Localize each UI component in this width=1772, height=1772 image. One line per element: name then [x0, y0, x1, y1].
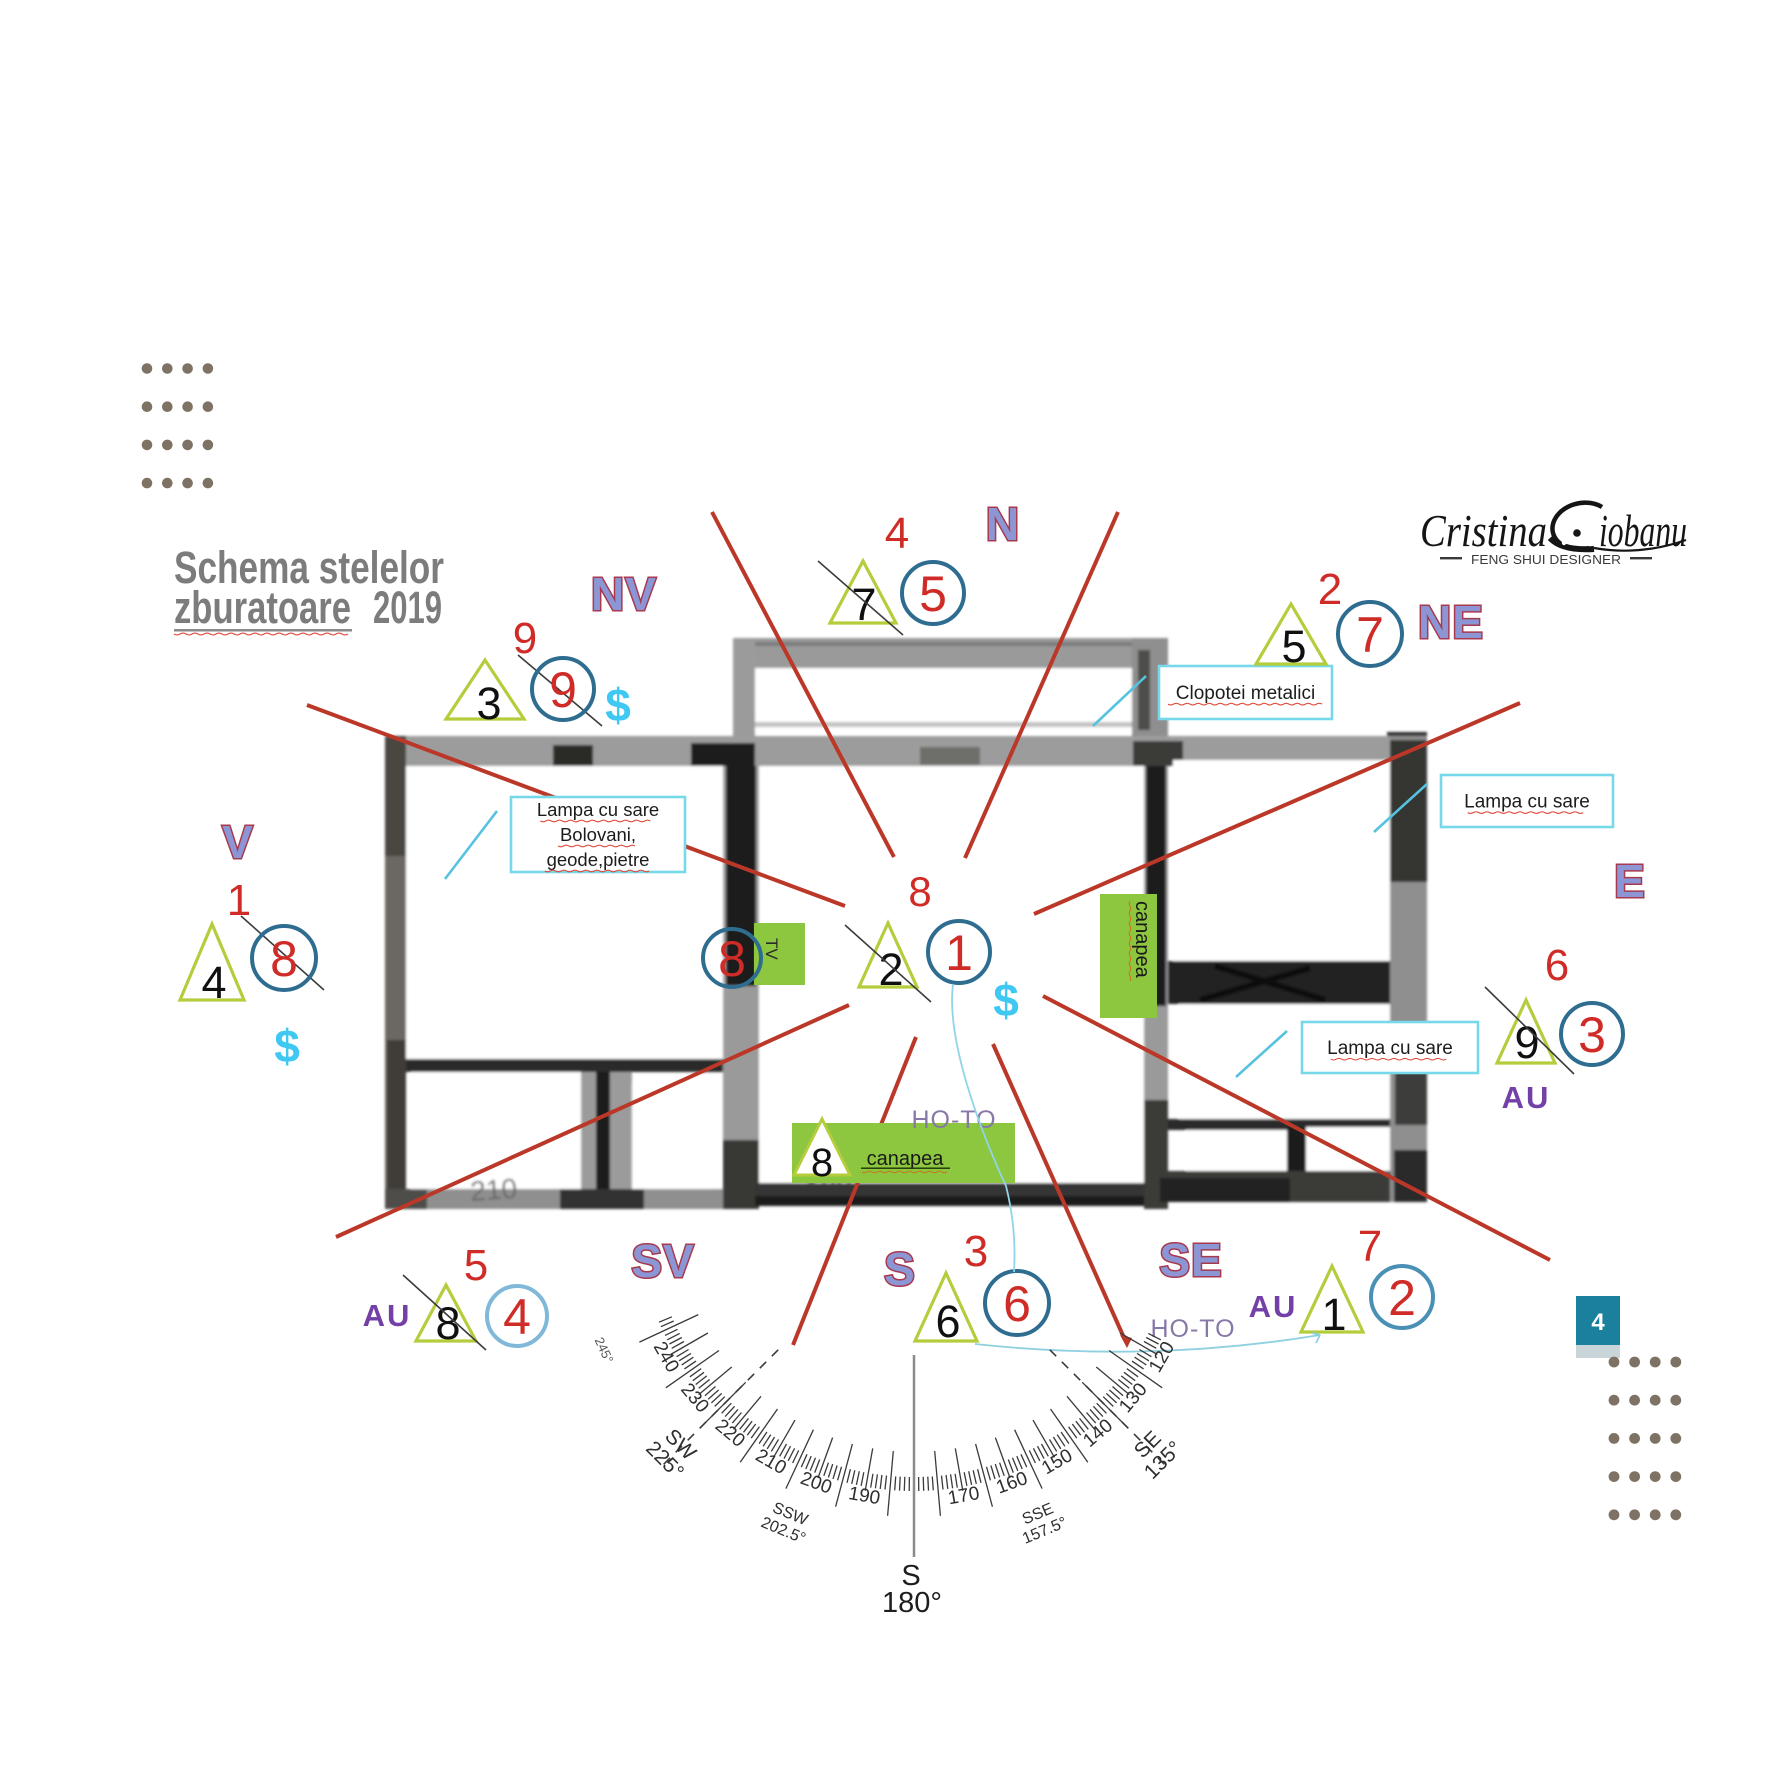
svg-text:AU: AU — [1502, 1080, 1551, 1115]
svg-text:3: 3 — [1578, 1007, 1606, 1063]
svg-text:4: 4 — [1591, 1309, 1605, 1336]
svg-text:2: 2 — [1318, 565, 1342, 614]
svg-text:HO-TO: HO-TO — [911, 1106, 996, 1134]
svg-text:6: 6 — [1003, 1276, 1031, 1332]
svg-text:9: 9 — [1514, 1017, 1539, 1068]
svg-text:8: 8 — [270, 931, 298, 987]
svg-text:Lampa cu sare: Lampa cu sare — [1464, 792, 1590, 813]
svg-text:iobanu: iobanu — [1599, 505, 1687, 556]
svg-text:zburatoare: zburatoare — [174, 582, 351, 633]
svg-text:180°: 180° — [882, 1587, 942, 1619]
svg-text:2: 2 — [878, 944, 903, 995]
svg-text:S: S — [884, 1243, 916, 1295]
svg-text:NE: NE — [1418, 596, 1484, 648]
svg-text:7: 7 — [851, 579, 876, 630]
svg-text:canapea: canapea — [1131, 901, 1153, 979]
svg-text:7: 7 — [1358, 1222, 1382, 1271]
svg-text:7: 7 — [1356, 607, 1384, 663]
svg-text:canapea: canapea — [867, 1148, 945, 1170]
svg-text:AU: AU — [1249, 1289, 1298, 1324]
svg-text:N: N — [986, 498, 1020, 550]
svg-text:6: 6 — [1545, 941, 1569, 990]
svg-text:8: 8 — [718, 931, 746, 987]
svg-text:$: $ — [605, 679, 631, 731]
svg-text:1: 1 — [227, 876, 251, 925]
svg-text:E: E — [1614, 855, 1646, 907]
svg-text:4: 4 — [503, 1289, 531, 1345]
svg-text:6: 6 — [935, 1296, 960, 1347]
svg-text:210: 210 — [469, 1173, 518, 1207]
svg-text:2019: 2019 — [373, 582, 442, 633]
svg-text:$: $ — [274, 1020, 300, 1072]
svg-text:5: 5 — [1281, 621, 1306, 672]
svg-text:geode,pietre: geode,pietre — [547, 849, 650, 870]
svg-text:8: 8 — [811, 1141, 833, 1185]
svg-text:Lampa cu sare: Lampa cu sare — [537, 799, 659, 820]
svg-text:Bolovani,: Bolovani, — [560, 824, 636, 845]
svg-text:9: 9 — [549, 662, 577, 718]
svg-text:SE: SE — [1159, 1234, 1222, 1286]
svg-text:FENG SHUI DESIGNER: FENG SHUI DESIGNER — [1471, 552, 1621, 567]
svg-text:5: 5 — [919, 566, 947, 622]
svg-text:4: 4 — [201, 957, 226, 1008]
svg-text:$: $ — [993, 974, 1019, 1026]
svg-text:AU: AU — [363, 1298, 412, 1333]
svg-text:9: 9 — [513, 614, 537, 663]
svg-text:HO-TO: HO-TO — [1150, 1315, 1235, 1343]
svg-text:V: V — [222, 816, 254, 868]
svg-text:Lampa cu sare: Lampa cu sare — [1327, 1038, 1453, 1059]
svg-text:3: 3 — [964, 1227, 988, 1276]
svg-text:TV: TV — [762, 938, 781, 960]
svg-text:NV: NV — [591, 568, 657, 620]
svg-text:Clopotei metalici: Clopotei metalici — [1176, 683, 1315, 704]
svg-text:8: 8 — [908, 868, 931, 915]
svg-text:2: 2 — [1388, 1270, 1416, 1326]
svg-text:4: 4 — [885, 509, 909, 558]
svg-text:1: 1 — [1321, 1289, 1346, 1340]
svg-text:SV: SV — [631, 1235, 694, 1287]
svg-text:Cristina: Cristina — [1420, 505, 1547, 556]
svg-text:1: 1 — [945, 925, 973, 981]
svg-text:3: 3 — [476, 678, 501, 729]
svg-text:5: 5 — [464, 1241, 488, 1290]
